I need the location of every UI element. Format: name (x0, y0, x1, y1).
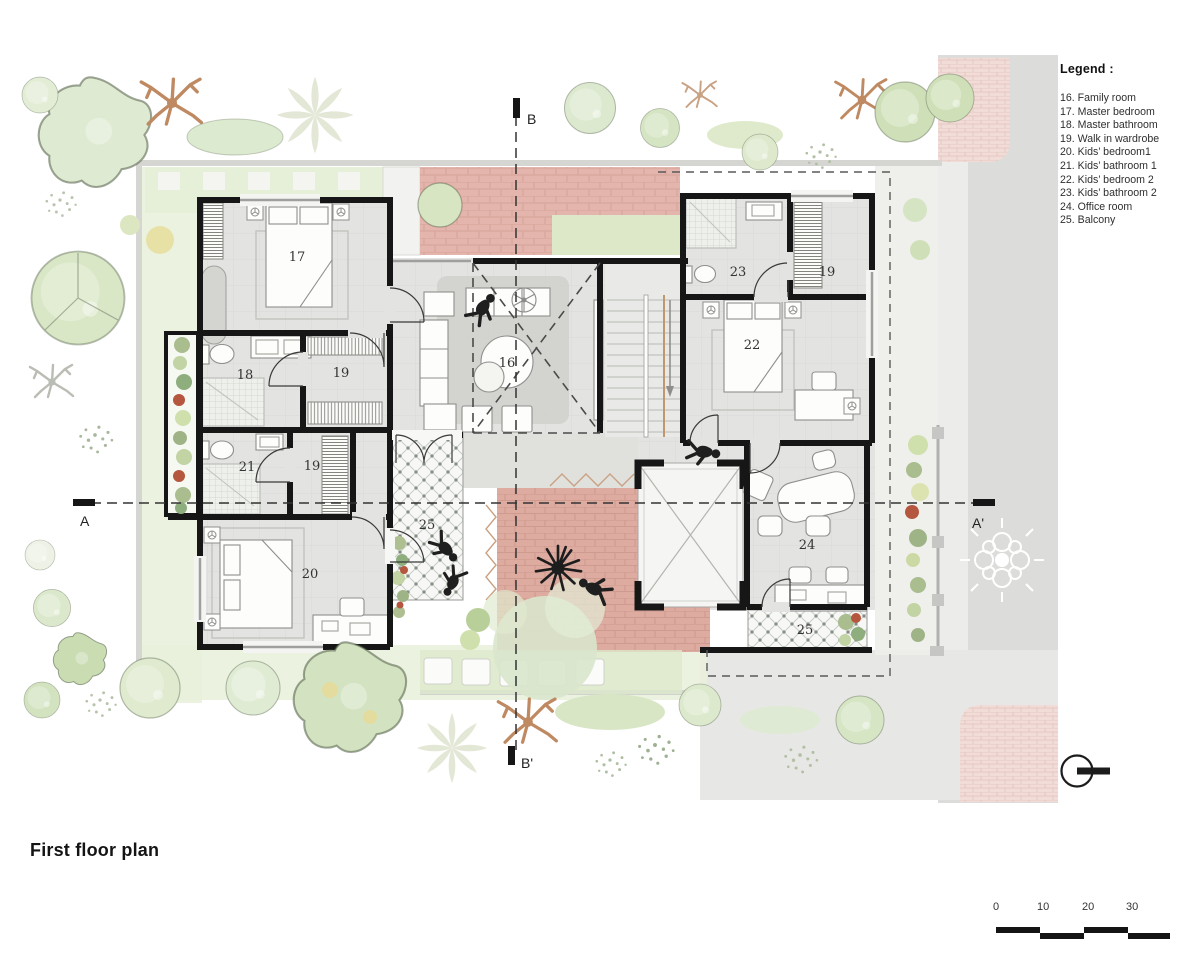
legend-list: 16. Family room 17. Master bedroom 18. M… (1060, 92, 1200, 228)
room-label-17: 17 (289, 250, 306, 265)
room-label-18: 18 (237, 368, 254, 383)
room-label-19a: 19 (333, 366, 350, 381)
page-title: First floor plan (30, 840, 159, 861)
scale-bar: 0 10 20 30 (993, 901, 1175, 945)
legend-item: 25. Balcony (1060, 214, 1200, 228)
legend-item: 22. Kids’ bedroom 2 (1060, 174, 1200, 188)
room-label-19b: 19 (304, 459, 321, 474)
floor-plan-drawing: A A' B B' 17 18 19 21 19 20 16 23 19 22 … (0, 0, 1200, 958)
room-label-25b: 25 (797, 623, 814, 638)
legend-item: 20. Kids’ bedroom1 (1060, 146, 1200, 160)
room-label-19c: 19 (819, 265, 836, 280)
room-label-25a: 25 (419, 518, 436, 533)
scale-label-30: 30 (1126, 901, 1138, 913)
scale-label-10: 10 (1037, 901, 1049, 913)
room-label-20: 20 (302, 567, 319, 582)
compound-wall-top (136, 160, 942, 166)
legend-heading: Legend : (1060, 62, 1200, 76)
section-label-b: B (527, 111, 536, 127)
room-label-24: 24 (799, 538, 816, 553)
legend-item: 24. Office room (1060, 201, 1200, 215)
room-label-22: 22 (744, 338, 761, 353)
room-label-21: 21 (239, 460, 256, 475)
scale-label-20: 20 (1082, 901, 1094, 913)
floor-plan-sheet: A A' B B' 17 18 19 21 19 20 16 23 19 22 … (0, 0, 1200, 958)
legend-item: 17. Master bedroom (1060, 106, 1200, 120)
north-orientation (1056, 749, 1116, 793)
section-label-b-prime: B' (521, 755, 533, 771)
compound-wall-left (136, 160, 142, 708)
skylight-void (638, 463, 743, 607)
room-label-23: 23 (730, 265, 747, 280)
legend-item: 16. Family room (1060, 92, 1200, 106)
legend-item: 18. Master bathroom (1060, 119, 1200, 133)
section-label-a: A (80, 513, 90, 529)
scale-segment (996, 927, 1040, 933)
sidewalk-corner-bottom (960, 705, 1058, 802)
room-label-16: 16 (499, 356, 516, 371)
legend-item: 21. Kids’ bathroom 1 (1060, 160, 1200, 174)
north-icon (1056, 749, 1116, 793)
staircase (605, 263, 686, 437)
scale-segment (1084, 927, 1128, 933)
section-label-a-prime: A' (972, 515, 984, 531)
legend-item: 19. Walk in wardrobe (1060, 133, 1200, 147)
legend-item: 23. Kids’ bathroom 2 (1060, 187, 1200, 201)
scale-label-0: 0 (993, 901, 999, 913)
scale-segment (1128, 933, 1170, 939)
legend-panel: Legend : 16. Family room 17. Master bedr… (1060, 62, 1200, 228)
scale-segment (1040, 933, 1084, 939)
